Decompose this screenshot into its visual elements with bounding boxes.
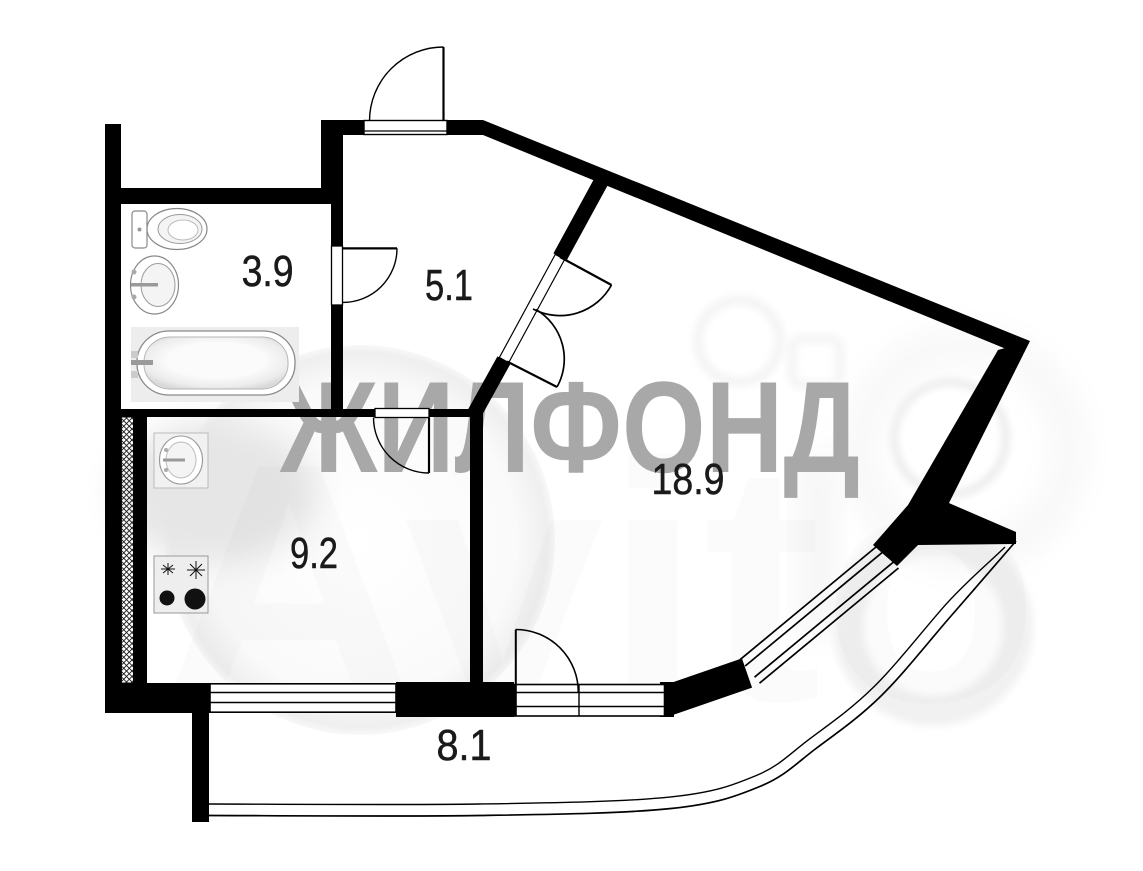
svg-text:18.9: 18.9 bbox=[652, 455, 725, 504]
svg-text:ЖИЛФОНД: ЖИЛФОНД bbox=[279, 354, 860, 500]
svg-text:9.2: 9.2 bbox=[290, 529, 338, 578]
svg-text:5.1: 5.1 bbox=[425, 261, 473, 310]
svg-text:3.9: 3.9 bbox=[242, 247, 294, 296]
svg-text:8.1: 8.1 bbox=[437, 721, 492, 770]
